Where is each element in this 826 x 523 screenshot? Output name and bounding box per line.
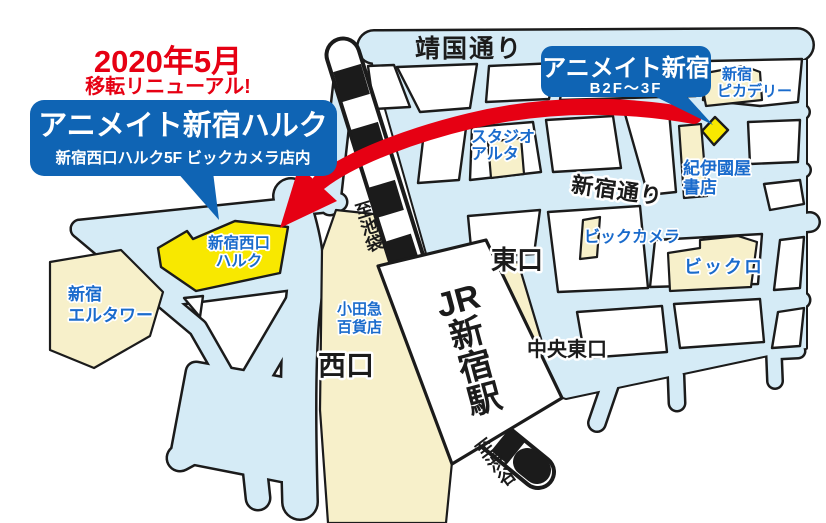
street-stub <box>774 356 775 381</box>
city-block <box>774 237 804 290</box>
new-store-title: アニメイト新宿ハルク <box>38 108 327 142</box>
alta-label-line1: スタジオ <box>471 128 535 146</box>
bicqlo-label: ビックロ <box>684 257 764 277</box>
halc-label-line1: 新宿西口 <box>208 233 270 252</box>
alta-label-line2: アルタ <box>471 145 519 163</box>
halc-label-line2: ハルク <box>216 252 263 270</box>
city-block <box>674 299 764 348</box>
yasukuni-dori-label: 靖国通り <box>415 35 523 63</box>
map-canvas: JR新宿駅 至池袋 至渋谷 靖国通り 新宿通り 東口 中央東口 西口 新宿 ピカ… <box>0 0 826 523</box>
l-tower-label-line2: エルタワー <box>68 306 153 325</box>
announcement-line1: 2020年5月 <box>94 44 242 79</box>
street-stub <box>762 112 802 114</box>
street-stub <box>252 442 258 498</box>
city-block <box>764 180 804 210</box>
piccadilly-label-line1: 新宿 <box>722 65 752 83</box>
street-shinjuku-dori-east-end <box>772 222 810 226</box>
east-exit-label: 東口 <box>491 245 543 275</box>
city-block <box>772 308 804 348</box>
odakyu-label-line1: 小田急 <box>337 300 382 318</box>
city-block <box>546 116 621 172</box>
central-east-exit-label: 中央東口 <box>527 337 607 361</box>
old-store-floors: B2F〜3F <box>590 80 663 97</box>
street-stub <box>778 351 798 352</box>
bic-camera-label: ビックカメラ <box>584 228 680 246</box>
street-stub <box>762 170 803 172</box>
relocation-map: JR新宿駅 至池袋 至渋谷 靖国通り 新宿通り 東口 中央東口 西口 新宿 ピカ… <box>0 0 826 523</box>
l-tower-label-line1: 新宿 <box>68 284 102 304</box>
street-stub <box>775 300 802 301</box>
west-exit-label: 西口 <box>318 350 374 381</box>
old-store-title: アニメイト新宿 <box>542 54 710 82</box>
kinokuniya-label-line2: 書店 <box>683 177 717 197</box>
kinokuniya-label-line1: 紀伊國屋 <box>683 158 751 178</box>
new-store-subtitle: 新宿西口ハルク5F ビックカメラ店内 <box>56 148 311 167</box>
announcement-line2: 移転リニューアル! <box>85 75 251 98</box>
piccadilly-label-line2: ピカデリー <box>717 82 792 100</box>
city-block <box>748 120 800 164</box>
street-stub <box>676 376 677 403</box>
odakyu-label-line2: 百貨店 <box>337 318 382 336</box>
